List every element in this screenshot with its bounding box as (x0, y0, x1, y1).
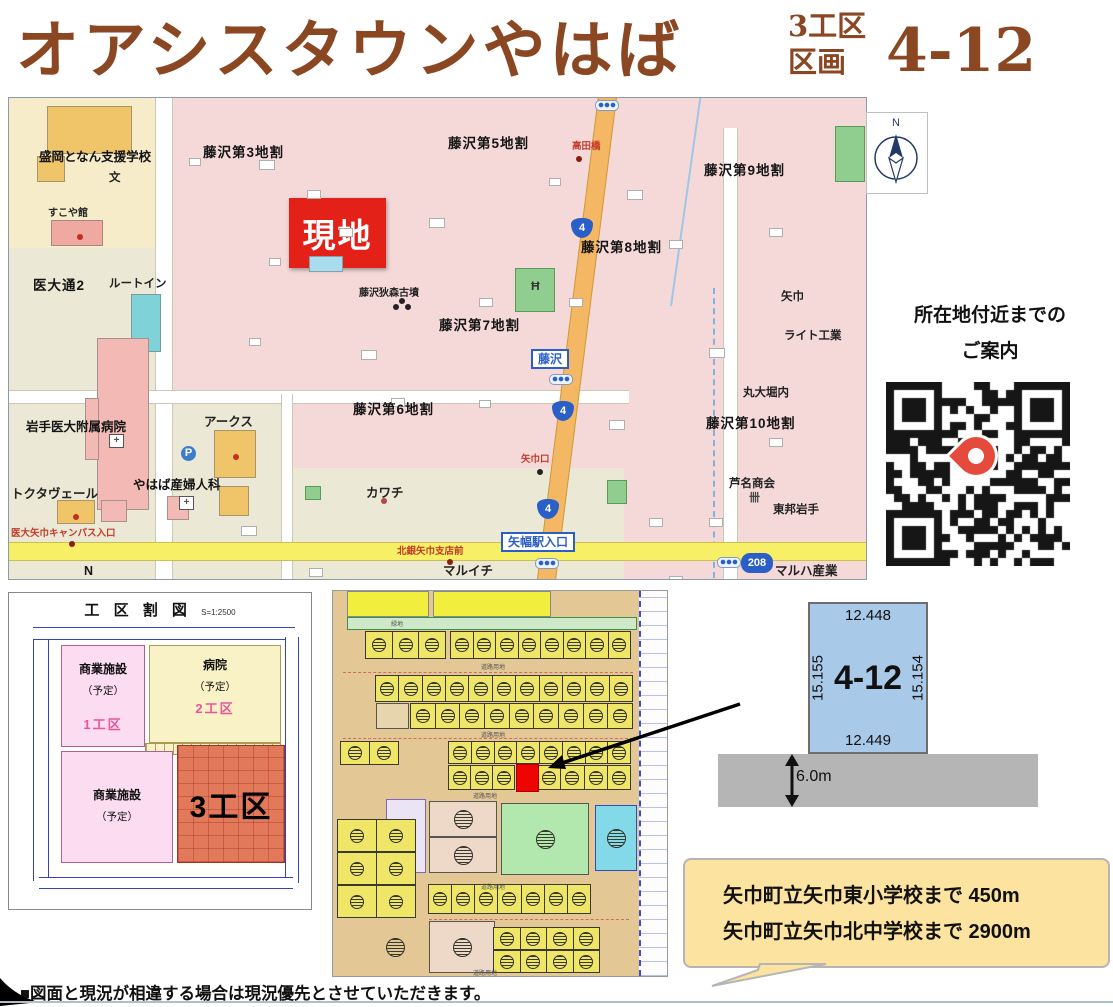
map-building (259, 160, 275, 170)
map-label: 藤沢第7地割 (439, 318, 520, 334)
lot-row (338, 885, 416, 918)
map-building (709, 348, 725, 358)
traffic-signal-icon (595, 100, 619, 111)
lot-cell (337, 852, 377, 885)
zone-road-west (33, 633, 49, 881)
lot-row (494, 927, 600, 950)
map-building (51, 220, 103, 246)
plat-block (501, 803, 589, 875)
zone-block-1-zone: 1工区 (83, 714, 122, 733)
lot-cell (563, 631, 587, 659)
map-label: 矢巾口 (521, 455, 550, 466)
plat-road-label: 緑地 (391, 619, 403, 628)
lot-cell (459, 703, 485, 729)
compass: N (866, 112, 928, 194)
map-dot (393, 304, 399, 310)
map-building (669, 576, 683, 580)
map-label: マルイチ (443, 564, 493, 578)
map-label: 医大矢巾キャンパス入口 (11, 529, 116, 540)
park-green (305, 486, 321, 500)
zone-road-east (285, 637, 299, 883)
map-building (249, 338, 261, 346)
plat-road-label: 道路用地 (473, 968, 497, 977)
ic-h-icon: + (109, 434, 124, 448)
lot-cell (392, 631, 420, 659)
lot-diagram-id: 4-12 (810, 604, 926, 752)
stream-line-dashed (713, 288, 715, 578)
map-label: 盛岡となん支援学校 (39, 150, 151, 164)
map-label: 高田橋 (572, 142, 601, 153)
map-label: N (84, 564, 93, 578)
road-vertical-east (723, 128, 738, 579)
map-building (241, 526, 257, 536)
lot-cell (493, 950, 521, 973)
zone-block-2: 病院 （予定） 2工区 (149, 645, 281, 743)
lot-cell (337, 819, 377, 852)
map-building (649, 518, 663, 527)
station-label: 矢幅駅入口 (501, 532, 575, 552)
plat-road-label: 道路用地 (481, 662, 505, 671)
lot-cell (445, 675, 469, 702)
lot-row (451, 631, 631, 659)
lot-glyph (453, 938, 472, 957)
map-label: 医大通2 (33, 278, 85, 294)
lot-cell (585, 631, 609, 659)
lot-cell (471, 741, 495, 764)
compass-n-label: N (892, 117, 900, 129)
bottom-rule (0, 1001, 1113, 1003)
map-building (769, 438, 783, 447)
map-building (309, 568, 323, 577)
map-label: 藤沢狄森古墳 (359, 288, 419, 300)
lot-row (338, 852, 416, 885)
lot-glyph (386, 938, 405, 957)
lot-cell (422, 675, 446, 702)
map-label: 丸大堀内 (743, 387, 789, 400)
plat-block (429, 837, 497, 873)
lot-cell (567, 884, 591, 914)
lot-cell (521, 884, 545, 914)
callout-tail (700, 962, 840, 992)
lot-row (429, 884, 591, 914)
zone-label: 3工区 区画 (788, 8, 866, 80)
zone-block-2-zone: 2工区 (195, 698, 234, 717)
station-label: 藤沢 (531, 349, 569, 369)
map-label: カワチ (366, 486, 404, 500)
lot-cell (495, 631, 519, 659)
plat-block (373, 927, 417, 967)
zone-line2: 区画 (788, 44, 866, 80)
lot-cell (375, 675, 399, 702)
map-label: 藤沢第10地割 (706, 416, 796, 432)
map-label: 藤沢第5地割 (448, 136, 529, 152)
map-label: すこや館 (48, 208, 88, 220)
distance-callout: 矢巾町立矢巾東小学校まで 450m 矢巾町立矢巾北中学校まで 2900m (683, 858, 1110, 968)
lot-cell (470, 765, 493, 790)
map-label: 矢巾 (781, 291, 804, 304)
map-dot (405, 304, 411, 310)
map-dot (77, 234, 83, 240)
map-building (549, 178, 561, 186)
flyer-page: オアシスタウンやはば 3工区 区画 4-12 現地 盛岡となん支援学校文すこや館… (0, 0, 1113, 1007)
map-building (309, 256, 343, 272)
zone-block-1-name: 商業施設 (79, 660, 127, 677)
zone-road-north (33, 627, 295, 640)
map-dot (537, 469, 543, 475)
map-building (669, 240, 683, 249)
zone-block-2-name: 病院 (203, 656, 227, 673)
route-shield: 208 (741, 553, 773, 573)
ic-h-icon: + (179, 496, 194, 510)
lot-cell (448, 765, 471, 790)
zone-map-title-text: 工 区 割 図 (84, 602, 192, 619)
lot-cell (448, 741, 472, 764)
zone-block-1-sub: （予定） (82, 683, 124, 698)
lot-cell (540, 631, 564, 659)
plat-road-label: 道路用地 (473, 791, 497, 800)
lot-cell (435, 703, 461, 729)
zone-line1: 3工区 (788, 8, 866, 44)
map-building (769, 228, 783, 237)
lot-cell (376, 852, 416, 885)
map-label: 芦名商会 (729, 478, 775, 491)
zone-division-map: 工 区 割 図 S=1:2500 商業施設 （予定） 1工区 病院 （予定） 2… (8, 592, 312, 910)
lot-glyph (536, 830, 555, 849)
zone-block-1: 商業施設 （予定） 1工区 (61, 645, 145, 747)
map-building (101, 500, 127, 522)
plat-block (595, 805, 637, 871)
plat-block (347, 591, 429, 617)
road-width-label: 6.0m (796, 768, 832, 786)
lot-cell (520, 950, 548, 973)
lot-row (494, 950, 600, 973)
map-label: ルートイン (109, 278, 167, 291)
lot-row (341, 741, 399, 765)
lot-cell (518, 631, 542, 659)
map-building (361, 350, 377, 360)
zone-block-3kouku-label: 3工区 (190, 782, 273, 826)
traffic-signal-icon (549, 374, 573, 385)
map-building (627, 190, 643, 200)
area-map: 現地 盛岡となん支援学校文すこや館医大通2ルートイン藤沢第3地割藤沢第5地割高田… (8, 97, 867, 580)
plat-road-line (429, 919, 629, 920)
qr-guide-line1: 所在地付近までの (868, 298, 1112, 334)
map-building (189, 158, 201, 166)
plat-road-label: 道路用地 (481, 882, 505, 891)
map-label: 藤沢第3地割 (203, 145, 284, 161)
compass-icon: N (867, 113, 925, 191)
plat-block (429, 921, 495, 973)
lot-diagram: 12.448 12.449 15.155 15.154 4-12 (808, 602, 928, 754)
distance-line2: 矢巾町立矢巾北中学校まで 2900m (723, 914, 1108, 950)
lot-cell (450, 631, 474, 659)
lot-cell (520, 927, 548, 950)
lot-glyph (454, 810, 473, 829)
page-title: オアシスタウンやはば (16, 0, 683, 91)
zone-map-title: 工 区 割 図 S=1:2500 (9, 599, 311, 620)
map-building (609, 420, 625, 430)
zone-block-3: 商業施設 （予定） (61, 751, 173, 863)
map-label: 北銀矢巾支店前 (397, 547, 464, 558)
lot-cell (451, 884, 475, 914)
map-dot (73, 514, 79, 520)
map-building (339, 228, 353, 237)
lot-row (338, 819, 416, 852)
map-label: アークス (204, 415, 253, 429)
lot-cell (365, 631, 393, 659)
lot-cell (493, 927, 521, 950)
park-green (607, 480, 627, 504)
map-label: 文 (109, 172, 121, 185)
zone-road-south (39, 877, 293, 889)
plat-block (376, 703, 409, 729)
lot-cell (573, 950, 601, 973)
ic-f-icon: 卌 (749, 492, 760, 505)
lot-cell (428, 884, 452, 914)
lot-cell (410, 703, 436, 729)
map-label: 藤沢第9地割 (704, 163, 785, 179)
lot-cell (340, 741, 370, 765)
map-label: 東邦岩手 (773, 504, 819, 517)
traffic-signal-icon (717, 557, 741, 568)
map-building (569, 298, 583, 307)
map-building (709, 518, 723, 527)
lot-cell (376, 885, 416, 918)
lot-cell (473, 631, 497, 659)
map-building (47, 106, 132, 154)
map-label: 藤沢第8地割 (581, 240, 662, 256)
lot-cell (398, 675, 422, 702)
plat-block (433, 591, 551, 617)
map-dot (233, 454, 239, 460)
lot-row (366, 631, 446, 659)
map-label: 岩手医大附属病院 (26, 420, 126, 434)
lot-cell (546, 927, 574, 950)
map-label: ライト工業 (784, 330, 842, 343)
lot-number: 4-12 (886, 16, 1036, 86)
qr-guide-line2: ご案内 (868, 334, 1112, 370)
lot-glyph (454, 846, 473, 865)
map-label: トクタヴェール (11, 487, 98, 501)
plat-block (429, 801, 497, 837)
lot-cell (608, 631, 632, 659)
zone-block-2-sub: （予定） (194, 679, 236, 694)
map-building (307, 190, 321, 199)
map-label: 藤沢第6地割 (353, 402, 434, 418)
park-green (835, 126, 865, 182)
lot-cell (337, 885, 377, 918)
qr-guide-text: 所在地付近までの ご案内 (868, 298, 1112, 370)
road-bar (718, 754, 1038, 807)
zone-block-3-sub: （予定） (96, 809, 138, 824)
lot-cell (546, 950, 574, 973)
lot-cell (369, 741, 399, 765)
traffic-signal-icon (535, 558, 559, 569)
map-building (479, 400, 491, 408)
ic-t-icon: Ħ (531, 280, 540, 294)
lot-cell (573, 927, 601, 950)
distance-line1: 矢巾町立矢巾東小学校まで 450m (723, 878, 1108, 914)
lot-cell (544, 884, 568, 914)
lot-cell (376, 819, 416, 852)
ic-p-icon: P (181, 446, 196, 461)
map-building (57, 500, 95, 524)
map-building (479, 298, 493, 307)
plat-road-line (343, 672, 633, 673)
map-label: マルハ産業 (775, 564, 838, 578)
zone-block-3kouku: 3工区 (177, 745, 285, 863)
map-building (219, 486, 249, 516)
lot-cell (468, 675, 492, 702)
map-building (269, 258, 281, 266)
map-dot (576, 156, 582, 162)
map-label: やはば産婦人科 (133, 478, 221, 492)
lot-glyph (607, 829, 626, 848)
map-building (429, 218, 445, 228)
map-dot (69, 541, 75, 547)
lot-cell (418, 631, 446, 659)
zone-map-scale: S=1:2500 (201, 608, 235, 617)
zone-block-3-name: 商業施設 (93, 786, 141, 803)
